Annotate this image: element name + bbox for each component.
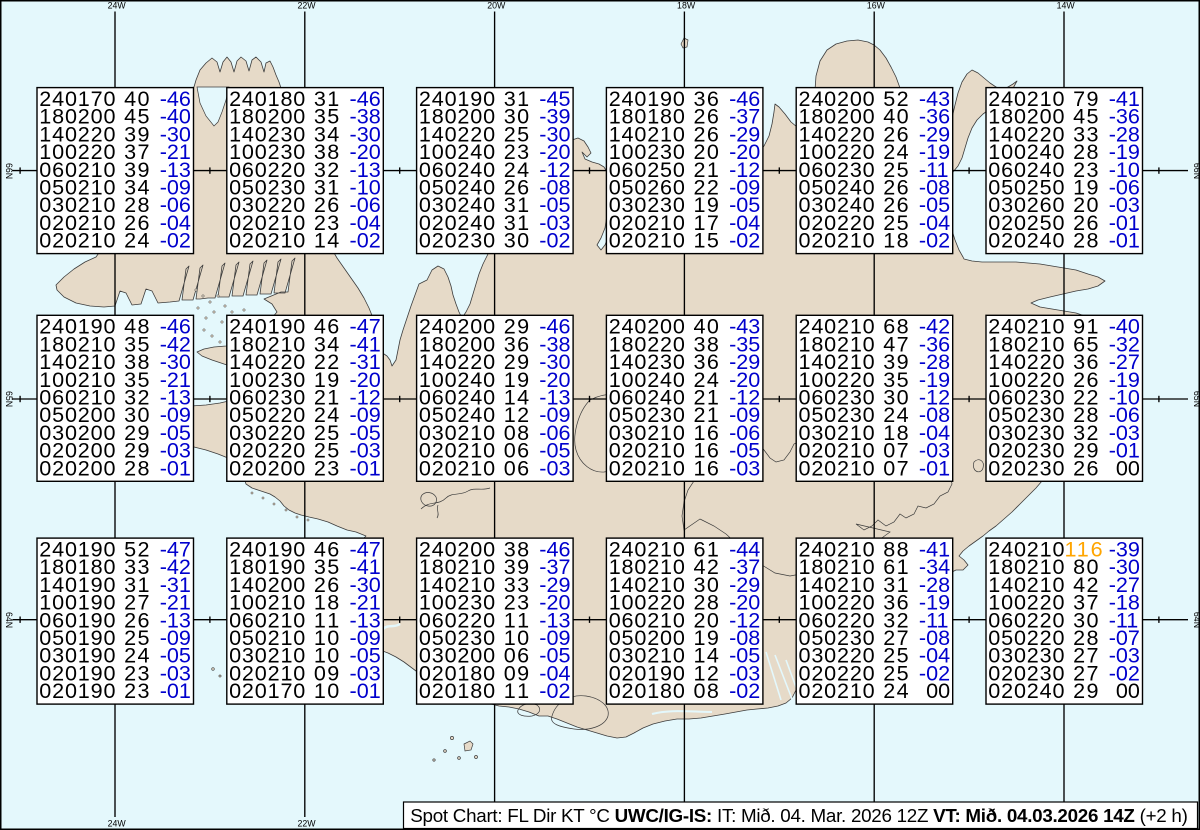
svg-text:16: 16: [694, 455, 719, 480]
svg-text:-02: -02: [729, 678, 760, 703]
svg-text:020230: 020230: [988, 455, 1064, 480]
svg-text:020170: 020170: [229, 678, 305, 703]
svg-text:00: 00: [1116, 678, 1140, 703]
svg-text:24W: 24W: [108, 0, 127, 10]
svg-text:18W: 18W: [677, 0, 696, 10]
svg-text:65N: 65N: [4, 391, 14, 407]
svg-text:10: 10: [314, 678, 339, 703]
svg-text:-02: -02: [729, 228, 760, 253]
svg-text:020210: 020210: [799, 455, 875, 480]
svg-text:00: 00: [1116, 455, 1140, 480]
svg-text:-02: -02: [539, 228, 570, 253]
svg-text:020240: 020240: [988, 678, 1064, 703]
svg-text:14W: 14W: [1057, 0, 1076, 10]
svg-text:28: 28: [1073, 228, 1098, 253]
svg-text:020180: 020180: [419, 678, 495, 703]
svg-text:18: 18: [883, 228, 908, 253]
svg-text:-01: -01: [350, 455, 381, 480]
svg-text:-03: -03: [539, 455, 570, 480]
svg-text:28: 28: [124, 455, 149, 480]
svg-text:020210: 020210: [419, 455, 495, 480]
svg-text:-01: -01: [1109, 228, 1140, 253]
svg-text:-02: -02: [160, 228, 191, 253]
svg-text:-03: -03: [729, 455, 760, 480]
svg-text:020210: 020210: [799, 678, 875, 703]
svg-text:26: 26: [1073, 455, 1098, 480]
svg-text:64N: 64N: [4, 612, 14, 628]
svg-text:11: 11: [504, 678, 529, 703]
svg-text:24: 24: [883, 678, 908, 703]
svg-text:020180: 020180: [609, 678, 685, 703]
svg-text:66N: 66N: [4, 163, 14, 179]
svg-text:020230: 020230: [419, 228, 495, 253]
svg-text:020200: 020200: [39, 455, 115, 480]
svg-text:07: 07: [883, 455, 908, 480]
svg-text:22W: 22W: [297, 0, 316, 10]
svg-text:16W: 16W: [867, 0, 886, 10]
svg-text:-01: -01: [160, 455, 191, 480]
svg-text:020210: 020210: [609, 455, 685, 480]
svg-text:20W: 20W: [487, 0, 506, 10]
svg-text:-01: -01: [919, 455, 950, 480]
svg-text:08: 08: [694, 678, 719, 703]
svg-text:020210: 020210: [799, 228, 875, 253]
svg-text:020210: 020210: [609, 228, 685, 253]
svg-text:020210: 020210: [229, 228, 305, 253]
svg-text:020200: 020200: [229, 455, 305, 480]
svg-text:-02: -02: [539, 678, 570, 703]
svg-text:-02: -02: [350, 228, 381, 253]
svg-text:24: 24: [124, 228, 149, 253]
svg-text:23: 23: [124, 678, 149, 703]
svg-text:23: 23: [314, 455, 339, 480]
svg-text:14: 14: [314, 228, 339, 253]
svg-text:-01: -01: [160, 678, 191, 703]
svg-text:020210: 020210: [39, 228, 115, 253]
svg-text:Spot Chart: FL Dir KT °C UWC/I: Spot Chart: FL Dir KT °C UWC/IG-IS: IT: …: [410, 805, 1187, 826]
svg-text:020240: 020240: [988, 228, 1064, 253]
svg-text:30: 30: [504, 228, 529, 253]
svg-text:29: 29: [1073, 678, 1098, 703]
svg-text:-01: -01: [350, 678, 381, 703]
svg-text:22W: 22W: [297, 819, 316, 829]
svg-text:00: 00: [926, 678, 950, 703]
svg-text:06: 06: [504, 455, 529, 480]
svg-text:15: 15: [694, 228, 719, 253]
svg-text:-02: -02: [919, 228, 950, 253]
svg-text:24W: 24W: [108, 819, 127, 829]
svg-text:020190: 020190: [39, 678, 115, 703]
